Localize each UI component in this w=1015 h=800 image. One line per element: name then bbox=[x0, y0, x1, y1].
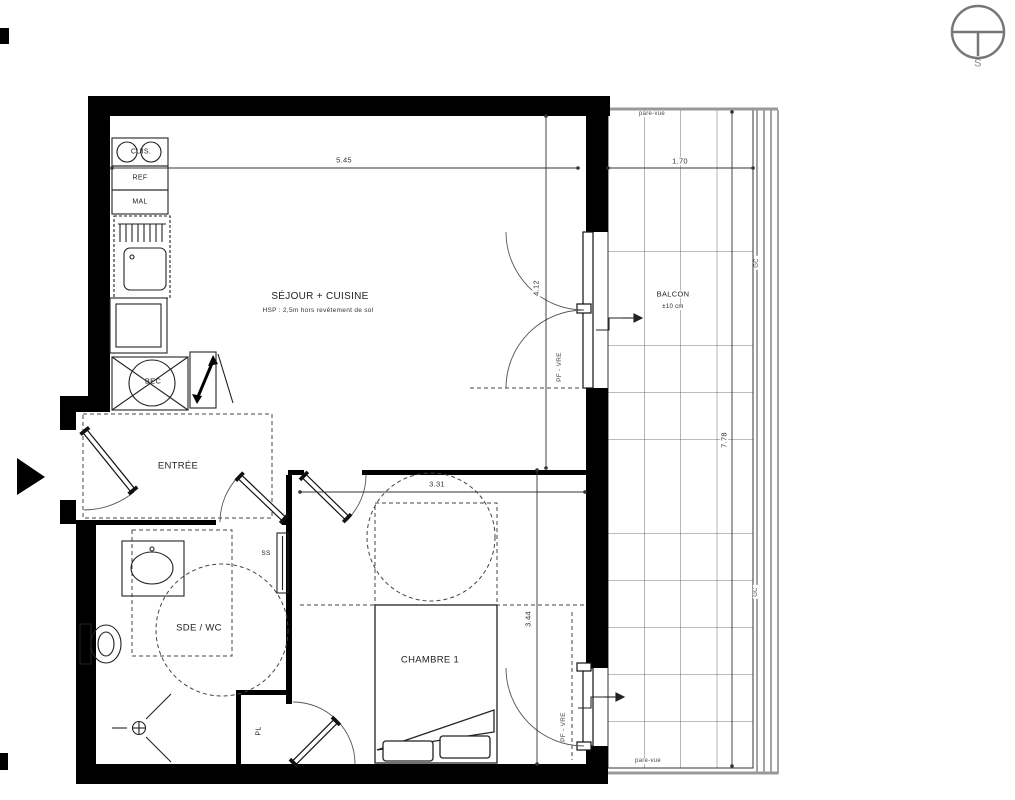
note-gc-bottom: GC bbox=[753, 585, 759, 599]
edge-tick-bottom bbox=[0, 753, 8, 770]
equipment-label-washer: MAL bbox=[132, 199, 147, 206]
room-label-placard: PL bbox=[256, 726, 263, 735]
window-opening-arrow-icon bbox=[192, 355, 218, 404]
dimension-balcon-width: 1.70 bbox=[670, 157, 690, 165]
sink bbox=[124, 248, 166, 290]
bed-pillow bbox=[440, 736, 490, 758]
walls bbox=[0, 28, 610, 784]
room-note-sejour: HSP : 2,5m hors revêtement de sol bbox=[263, 308, 374, 315]
opening-label-sejour-window: PF - VRE bbox=[557, 352, 564, 382]
washbasin bbox=[131, 552, 173, 584]
room-label-chambre: CHAMBRE 1 bbox=[399, 655, 461, 665]
dimension-chambre-depth: 3.44 bbox=[524, 609, 532, 629]
worktop bbox=[110, 298, 167, 353]
bed-pillow bbox=[383, 741, 433, 761]
equipment-label-water-heater: BEC bbox=[145, 377, 161, 385]
sde-zone bbox=[132, 530, 232, 656]
note-gc-top: GC bbox=[754, 256, 760, 270]
entrance-arrow-icon bbox=[17, 458, 45, 495]
edge-tick-top bbox=[0, 28, 9, 44]
plan-linework bbox=[0, 0, 1015, 800]
balcony-tiles bbox=[608, 110, 753, 768]
note-pare-vue-bottom: pare-vue bbox=[633, 758, 663, 764]
door-leaves bbox=[80, 427, 351, 768]
dimension-balcon-depth: 7.78 bbox=[720, 430, 728, 450]
room-label-balcon: BALCON bbox=[655, 290, 692, 298]
bed bbox=[375, 605, 497, 763]
compass-icon bbox=[952, 6, 1004, 58]
compass-south-label: S bbox=[974, 59, 982, 70]
kitchen-fixtures bbox=[110, 138, 233, 410]
equipment-label-hob: CUIS. bbox=[131, 149, 151, 156]
room-label-sejour: SÉJOUR + CUISINE bbox=[271, 292, 368, 302]
opening-label-chambre-window: PF - VRE bbox=[561, 712, 568, 742]
equipment-label-fridge: REF bbox=[133, 175, 148, 182]
dashed-zones bbox=[83, 388, 586, 760]
room-note-balcon: ±10 cm bbox=[660, 304, 685, 310]
chambre-zone bbox=[375, 503, 497, 605]
room-label-sde-wc: SDE / WC bbox=[174, 623, 224, 633]
balcony-railing bbox=[757, 110, 778, 774]
dimension-sejour-depth: 4.12 bbox=[532, 278, 540, 298]
dimension-chambre-width: 3.31 bbox=[427, 480, 447, 488]
dimension-sejour-width: 5.45 bbox=[334, 156, 354, 164]
floor-plan: SÉJOUR + CUISINE HSP : 2,5m hors revêtem… bbox=[0, 0, 1015, 800]
equipment-label-towel-dryer: SS bbox=[261, 551, 270, 558]
note-pare-vue-top: pare-vue bbox=[637, 111, 667, 117]
room-label-entree: ENTRÉE bbox=[158, 461, 198, 471]
